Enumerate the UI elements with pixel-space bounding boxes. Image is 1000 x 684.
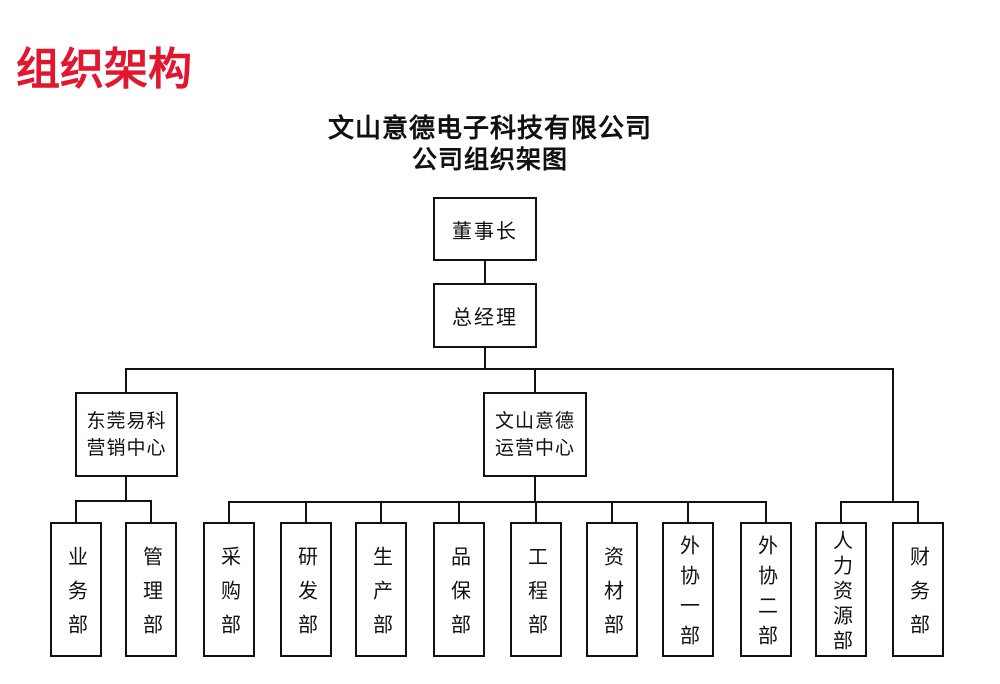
org-node-dept-outsource-2: 外协二部 <box>740 522 792 657</box>
connector-line <box>484 261 486 283</box>
marketing-center-label: 东莞易科 营销中心 <box>86 408 166 462</box>
dept-label: 人力资源部 <box>827 525 856 655</box>
connector-line <box>150 500 152 522</box>
dept-label: 业务部 <box>62 532 91 648</box>
connector-line <box>484 348 486 370</box>
dept-label: 管理部 <box>137 532 166 648</box>
org-node-dept-business: 业务部 <box>50 522 102 657</box>
connector-line <box>305 501 307 522</box>
dept-label: 财务部 <box>904 532 933 648</box>
org-node-dept-materials: 资材部 <box>586 522 638 657</box>
connector-line <box>458 501 460 522</box>
org-node-general-manager: 总经理 <box>433 283 537 348</box>
page-title: 组织架构 <box>16 48 192 92</box>
dept-label: 外协一部 <box>674 525 703 655</box>
dept-label: 资材部 <box>598 532 627 648</box>
dept-label: 品保部 <box>445 532 474 648</box>
connector-line <box>840 501 919 503</box>
connector-line <box>75 500 152 502</box>
connector-line <box>125 368 127 394</box>
org-node-dept-purchasing: 采购部 <box>203 522 255 657</box>
connector-line <box>534 368 536 394</box>
operations-center-label: 文山意德 运营中心 <box>495 408 575 462</box>
connector-line <box>892 368 894 503</box>
org-node-dept-rnd: 研发部 <box>280 522 332 657</box>
chart-title-line2: 公司组织架图 <box>190 145 790 177</box>
org-node-dept-outsource-1: 外协一部 <box>662 522 714 657</box>
dept-label: 研发部 <box>292 532 321 648</box>
general-manager-label: 总经理 <box>452 301 518 330</box>
operations-center-line2: 运营中心 <box>495 435 575 462</box>
org-node-operations-center: 文山意德 运营中心 <box>483 392 587 477</box>
org-node-chairman: 董事长 <box>433 197 537 261</box>
org-node-dept-management: 管理部 <box>125 522 177 657</box>
dept-label: 工程部 <box>522 532 551 648</box>
org-node-marketing-center: 东莞易科 营销中心 <box>75 392 178 477</box>
org-node-dept-hr: 人力资源部 <box>815 522 867 657</box>
connector-line <box>75 500 77 522</box>
marketing-center-line2: 营销中心 <box>86 435 166 462</box>
chart-title: 文山意德电子科技有限公司 公司组织架图 <box>190 112 790 177</box>
connector-line <box>611 501 613 522</box>
org-chart-slide: 组织架构 文山意德电子科技有限公司 公司组织架图 董事长 总经理 东莞易科 营销… <box>0 0 1000 684</box>
connector-line <box>534 477 536 501</box>
connector-line <box>380 501 382 522</box>
connector-line <box>917 501 919 522</box>
connector-line <box>535 501 537 522</box>
connector-line <box>125 477 127 500</box>
connector-line <box>840 501 842 522</box>
connector-line <box>126 368 894 370</box>
org-node-dept-quality: 品保部 <box>433 522 485 657</box>
dept-label: 生产部 <box>367 532 396 648</box>
connector-line <box>765 501 767 522</box>
connector-line <box>228 501 230 522</box>
org-node-dept-engineering: 工程部 <box>510 522 562 657</box>
chart-title-line1: 文山意德电子科技有限公司 <box>190 112 790 145</box>
operations-center-line1: 文山意德 <box>495 408 575 435</box>
connector-line <box>687 501 689 522</box>
dept-label: 外协二部 <box>752 525 781 655</box>
org-node-dept-finance: 财务部 <box>892 522 944 657</box>
marketing-center-line1: 东莞易科 <box>86 408 166 435</box>
dept-label: 采购部 <box>215 532 244 648</box>
org-node-dept-production: 生产部 <box>355 522 407 657</box>
chairman-label: 董事长 <box>452 215 518 244</box>
